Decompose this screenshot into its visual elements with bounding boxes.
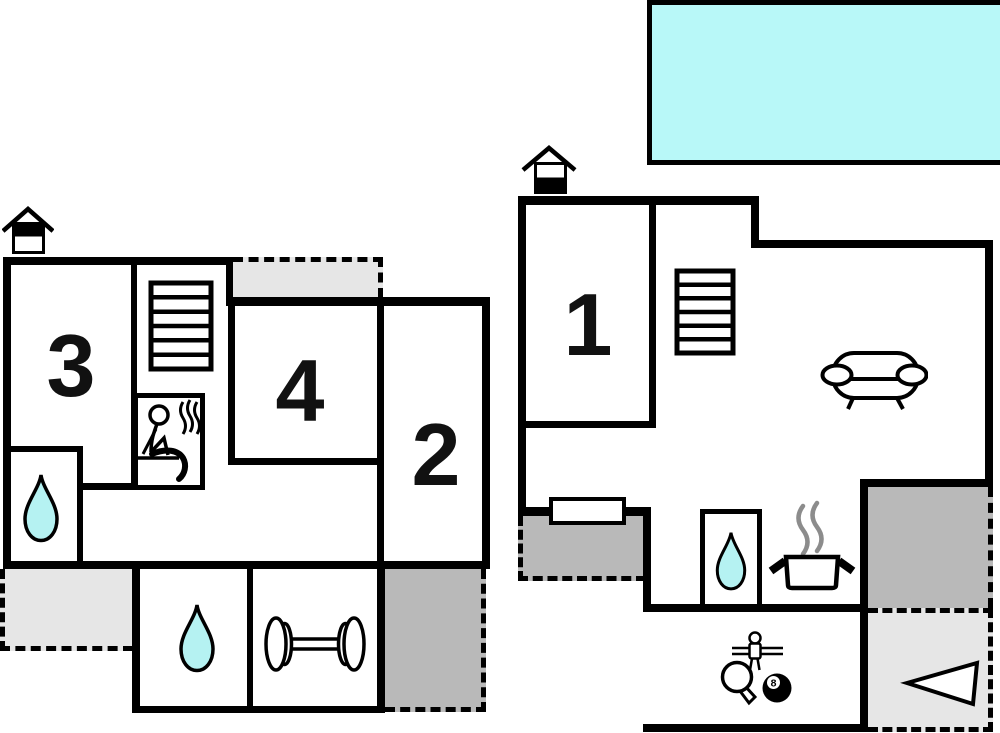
wall-segment — [247, 569, 253, 709]
arrow-triangle-icon — [898, 656, 986, 710]
entrance-step — [549, 497, 626, 525]
wall-segment — [751, 240, 993, 248]
room-label-2: 2 — [386, 409, 486, 501]
wall-segment — [860, 479, 868, 612]
dumbbell-icon — [261, 614, 369, 674]
room-label-4: 4 — [250, 345, 350, 437]
pot-steam-icon — [766, 500, 858, 592]
eight-ball-icon: 8 — [763, 674, 792, 703]
wall-segment — [518, 196, 526, 516]
water-drop-icon — [713, 530, 749, 592]
terrace-dashed-left — [0, 569, 133, 651]
wall-segment — [518, 421, 656, 428]
wall-segment — [3, 561, 490, 569]
sofa-icon — [818, 345, 928, 413]
room-label-3: 3 — [21, 320, 121, 412]
wall-segment — [3, 446, 83, 452]
wall-segment — [518, 196, 759, 205]
wall-segment — [132, 569, 140, 713]
wall-segment — [132, 706, 385, 713]
sauna-icon — [133, 393, 205, 490]
stairs-icon — [674, 268, 736, 356]
wall-segment — [377, 569, 385, 713]
stairs-icon — [148, 280, 214, 372]
game-room-icons: 8 — [703, 626, 798, 710]
wall-segment — [3, 257, 235, 265]
wall-segment — [985, 240, 993, 487]
wall-segment — [860, 479, 993, 487]
floor-plan: 3 4 2 — [0, 0, 1000, 733]
wall-segment — [228, 458, 384, 465]
terrace-dashed-top — [233, 257, 383, 298]
terrace-dark — [518, 516, 646, 581]
water-drop-icon — [20, 472, 62, 544]
swimming-pool — [647, 0, 1000, 165]
wall-segment — [377, 302, 384, 568]
eight-ball-number: 8 — [771, 678, 777, 690]
wall-segment — [649, 196, 656, 428]
wall-segment — [643, 724, 868, 732]
chimney-icon — [2, 206, 54, 256]
room-label-1: 1 — [538, 279, 638, 371]
wall-segment — [3, 257, 11, 568]
wall-segment — [228, 302, 235, 464]
chimney-icon — [521, 144, 577, 196]
terrace-dark — [868, 487, 993, 608]
wall-segment — [860, 604, 868, 732]
wall-segment — [77, 446, 83, 568]
table-tennis-paddle-icon — [723, 663, 756, 704]
wall-segment — [228, 297, 490, 306]
terrace-dark — [385, 569, 486, 712]
water-drop-icon — [176, 602, 218, 674]
wall-segment — [643, 507, 651, 612]
